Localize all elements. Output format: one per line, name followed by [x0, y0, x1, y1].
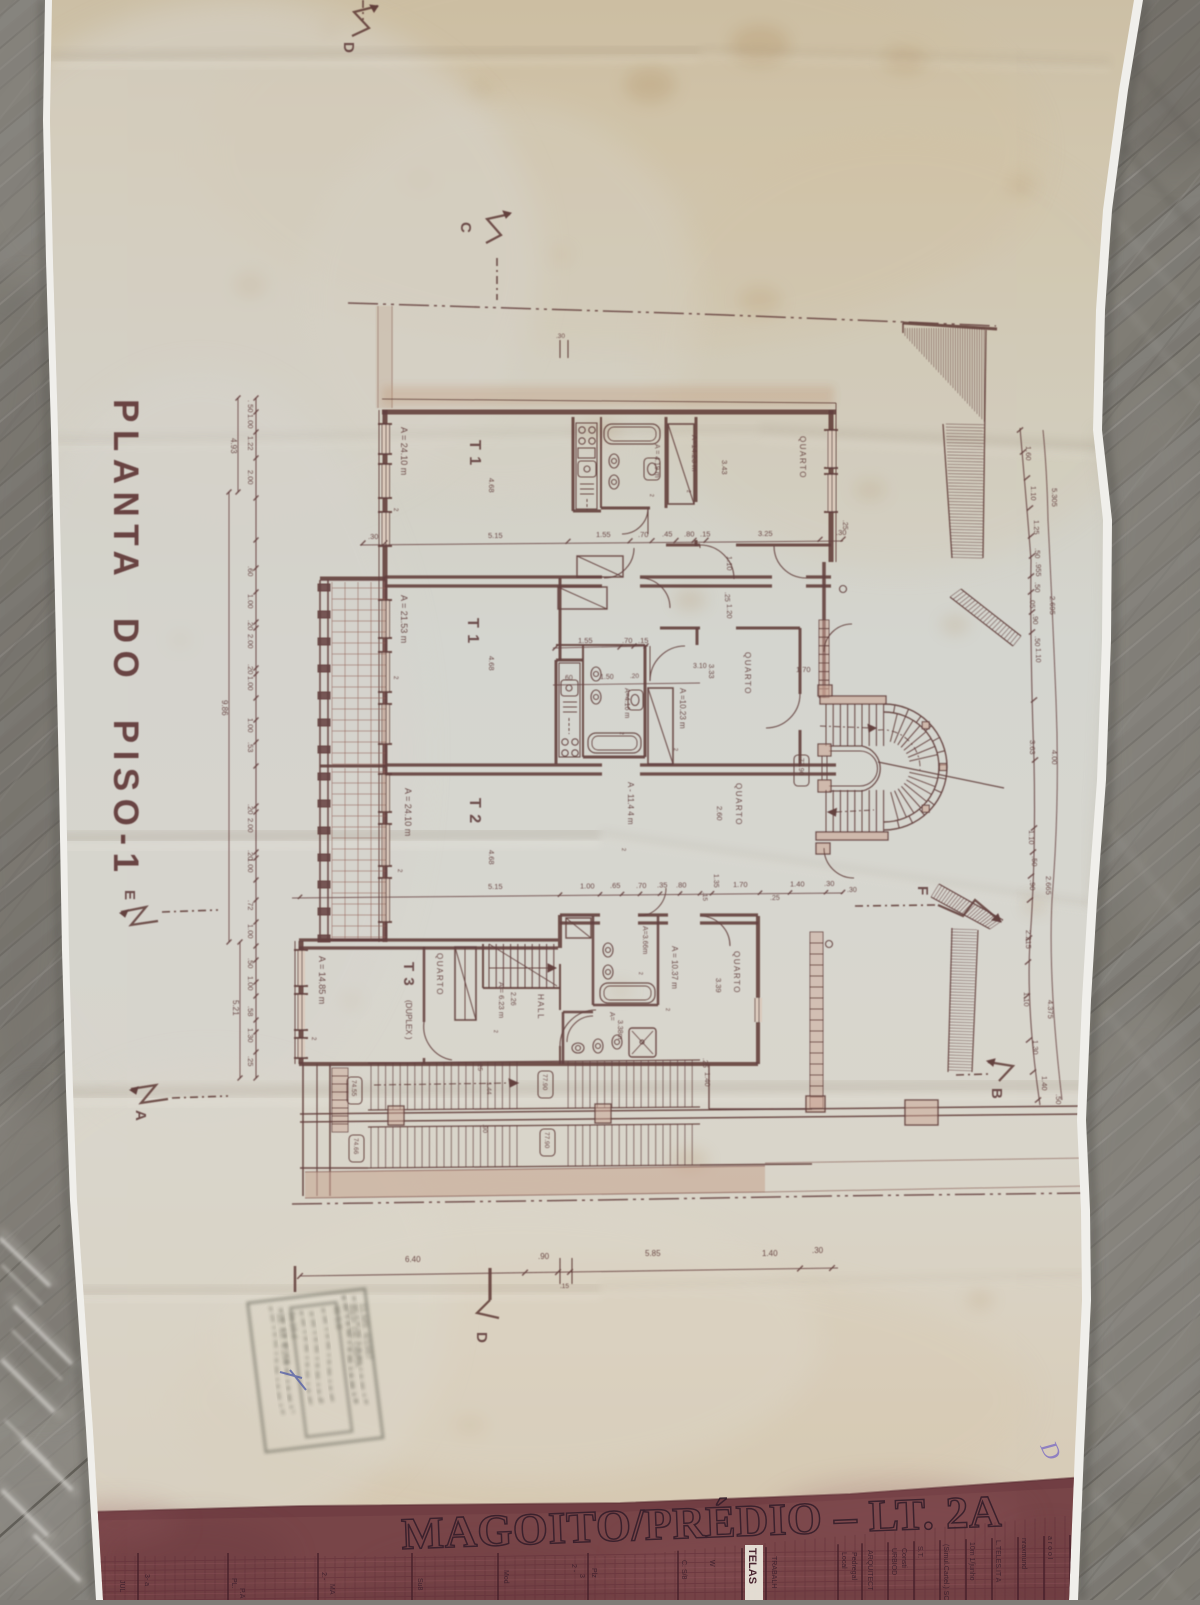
svg-text:T 3: T 3	[400, 962, 417, 987]
svg-text:A: A	[132, 1110, 149, 1121]
svg-text:C: C	[457, 222, 474, 233]
svg-text:QUARTO: QUARTO	[743, 652, 752, 695]
svg-text:1.40: 1.40	[1040, 1076, 1049, 1091]
svg-text:.50: .50	[246, 958, 255, 968]
svg-text:.50: .50	[1033, 548, 1042, 558]
svg-text:MA: MA	[328, 1584, 335, 1595]
svg-text:1.00: 1.00	[246, 718, 255, 733]
svg-text:.20: .20	[246, 804, 255, 814]
svg-text:.15: .15	[638, 636, 648, 645]
svg-text:1.60: 1.60	[1024, 446, 1033, 461]
svg-text:3.39: 3.39	[714, 978, 723, 993]
svg-text:.30: .30	[812, 1246, 824, 1255]
svg-text:2: 2	[637, 972, 643, 975]
svg-text:1.55: 1.55	[596, 530, 611, 539]
svg-text:1.30: 1.30	[1031, 1040, 1040, 1055]
svg-text:2.00: 2.00	[246, 634, 255, 649]
svg-text:Mod: Mod	[502, 1570, 509, 1584]
svg-text:B: B	[988, 1088, 1005, 1099]
svg-text:74.55: 74.55	[350, 1080, 357, 1097]
svg-text:JUL: JUL	[118, 1580, 125, 1593]
svg-text:a r o o l: a r o o l	[1046, 1536, 1053, 1560]
svg-text:D: D	[473, 1332, 490, 1343]
svg-text:74.66: 74.66	[352, 1138, 359, 1155]
svg-text:.90: .90	[538, 1252, 550, 1261]
svg-text:PL.: PL.	[230, 1578, 237, 1589]
svg-text:4.375: 4.375	[1046, 1000, 1055, 1019]
svg-text:1.10: 1.10	[1029, 486, 1038, 501]
svg-text:A =10.23 m: A =10.23 m	[678, 688, 687, 729]
svg-text:T 2: T 2	[466, 798, 483, 824]
svg-text:.70: .70	[638, 530, 648, 539]
svg-text:2: 2	[685, 490, 691, 493]
svg-text:1.44: 1.44	[485, 1082, 492, 1095]
svg-text:Pedregal: Pedregal	[850, 1552, 857, 1580]
svg-text:3.10: 3.10	[693, 663, 707, 670]
svg-text:W: W	[708, 1560, 715, 1567]
svg-text:1.70: 1.70	[733, 880, 748, 889]
svg-text:10m 1/junho: 10m 1/junho	[968, 1542, 975, 1581]
svg-text:.58: .58	[246, 1006, 255, 1016]
svg-text:.53: .53	[246, 742, 255, 752]
svg-text:77.90: 77.90	[541, 1074, 548, 1091]
svg-text:.50: .50	[1054, 1094, 1063, 1104]
svg-text:.25: .25	[476, 1062, 483, 1071]
svg-text:URBIOD: URBIOD	[890, 1548, 897, 1575]
svg-text:Plz: Plz	[590, 1568, 597, 1578]
svg-text:.25: .25	[246, 1056, 255, 1066]
svg-text:5.85: 5.85	[645, 1249, 661, 1258]
svg-text:1.22: 1.22	[246, 436, 255, 451]
svg-text:1.35: 1.35	[712, 874, 719, 888]
svg-text:1.70: 1.70	[796, 665, 811, 674]
svg-text:4.68: 4.68	[487, 478, 496, 493]
svg-text:PLANTA DO PISO-1: PLANTA DO PISO-1	[106, 399, 145, 880]
svg-text:3- a: 3- a	[143, 1574, 150, 1586]
svg-text:1.00: 1.00	[246, 594, 255, 609]
svg-text:.15: .15	[701, 892, 708, 901]
svg-text:A=: A=	[608, 1012, 615, 1021]
svg-text:.80: .80	[676, 881, 686, 890]
svg-text:HALL: HALL	[536, 994, 545, 1020]
svg-text:1.50: 1.50	[600, 674, 614, 681]
svg-text:Local: Local	[840, 1552, 847, 1569]
svg-text:3.38m: 3.38m	[616, 1020, 623, 1040]
svg-text:F: F	[914, 886, 931, 895]
svg-text:A=3.66m: A=3.66m	[641, 926, 648, 954]
svg-text:1.10: 1.10	[1022, 992, 1031, 1007]
svg-text:2: 2	[648, 494, 654, 497]
svg-text:1.10: 1.10	[725, 556, 734, 571]
svg-text:T 1: T 1	[466, 440, 483, 466]
svg-text:1.40: 1.40	[762, 1249, 778, 1258]
svg-text:2: 2	[620, 848, 626, 851]
svg-text:.25: .25	[770, 895, 780, 902]
svg-text:.15: .15	[700, 529, 710, 538]
svg-text:.90: .90	[1028, 880, 1037, 890]
svg-text:9.86: 9.86	[220, 700, 229, 716]
svg-text:.90: .90	[481, 1124, 488, 1133]
svg-text:3.25: 3.25	[758, 529, 773, 538]
svg-text:Consti: Consti	[900, 1548, 907, 1568]
svg-text:1.40: 1.40	[790, 880, 805, 889]
svg-text:.20: .20	[246, 620, 255, 630]
svg-text:T 1: T 1	[464, 618, 481, 644]
svg-text:.60: .60	[246, 566, 255, 576]
svg-text:.30: .30	[847, 887, 857, 894]
svg-text:77.90: 77.90	[543, 1132, 550, 1149]
svg-text:5.21: 5.21	[231, 1000, 240, 1016]
svg-text:4.93: 4.93	[229, 438, 238, 454]
svg-text:5.15: 5.15	[488, 531, 503, 540]
svg-text:TRABALH: TRABALH	[770, 1556, 777, 1588]
svg-text:A - 11.4 4 m: A - 11.4 4 m	[626, 782, 635, 825]
svg-text:A=14.23 m: A=14.23 m	[690, 435, 699, 471]
svg-text:1.10: 1.10	[1027, 830, 1036, 845]
svg-text:P.A: P.A	[238, 1588, 245, 1599]
svg-text:6.40: 6.40	[405, 1255, 421, 1264]
svg-text:2.665: 2.665	[1044, 876, 1053, 895]
svg-text:.70: .70	[636, 881, 646, 890]
svg-text:4.68: 4.68	[487, 850, 496, 865]
svg-text:3.43: 3.43	[720, 460, 729, 475]
svg-text:1.00: 1.00	[246, 976, 255, 991]
svg-text:1.40: 1.40	[703, 1072, 712, 1087]
svg-text:1.25: 1.25	[1032, 520, 1041, 535]
svg-text:2.60: 2.60	[715, 806, 724, 821]
svg-text:.05: .05	[1028, 598, 1037, 608]
svg-text:5.305: 5.305	[1050, 488, 1059, 507]
svg-text:1.00: 1.00	[246, 676, 255, 691]
svg-text:2: 2	[672, 748, 678, 751]
svg-text:2.00: 2.00	[246, 470, 255, 485]
svg-text:2.-: 2.-	[320, 1572, 327, 1581]
svg-text:5.15: 5.15	[488, 882, 503, 891]
svg-text:C. S/8: C. S/8	[680, 1560, 687, 1580]
svg-text:.45: .45	[662, 530, 672, 539]
svg-text:(DUPLEX ): (DUPLEX )	[404, 1000, 413, 1040]
svg-text:2: 2	[664, 1008, 670, 1011]
svg-text:.20: .20	[246, 664, 255, 674]
svg-text:A = 24.10 m: A = 24.10 m	[399, 427, 409, 475]
svg-text:A = 4.19 m: A = 4.19 m	[653, 444, 660, 478]
svg-text:TELAS: TELAS	[746, 1548, 758, 1584]
svg-text:2: 2	[492, 1030, 498, 1033]
svg-text:2: 2	[618, 732, 624, 735]
svg-text:1.00: 1.00	[580, 881, 595, 890]
svg-text:ARQUITECT: ARQUITECT	[866, 1550, 873, 1591]
svg-text:.25: .25	[701, 1058, 708, 1068]
svg-text:A = 24.10 m: A = 24.10 m	[403, 788, 413, 836]
svg-text:3: 3	[578, 1574, 585, 1578]
svg-text:.30: .30	[556, 333, 565, 340]
svg-text:.25: .25	[841, 520, 848, 530]
svg-text:.20: .20	[630, 673, 639, 680]
svg-text:1.00: 1.00	[246, 414, 255, 429]
svg-text:4.00: 4.00	[1050, 750, 1059, 765]
svg-text:1.00: 1.00	[246, 924, 255, 939]
svg-text:A = 6.23 m: A = 6.23 m	[497, 982, 506, 1018]
svg-text:Su8: Su8	[416, 1578, 423, 1591]
svg-text:.35: .35	[657, 881, 667, 890]
svg-text:nraxmund: nraxmund	[1020, 1538, 1027, 1569]
svg-text:.80: .80	[684, 529, 694, 538]
svg-text:1.20: 1.20	[725, 604, 734, 619]
svg-text:2 -: 2 -	[570, 1564, 577, 1573]
svg-text:.30: .30	[368, 532, 378, 541]
svg-text:A = 10.37 m: A = 10.37 m	[670, 946, 679, 989]
svg-text:.50: .50	[1033, 582, 1042, 592]
svg-text:L.TELES.IT A: L.TELES.IT A	[994, 1540, 1001, 1583]
svg-text:.955: .955	[1034, 562, 1043, 577]
svg-text:1.10: 1.10	[1034, 648, 1043, 663]
svg-text:.60: .60	[563, 675, 573, 682]
svg-text:.15: .15	[560, 1283, 569, 1290]
svg-text:4.68: 4.68	[487, 656, 496, 671]
svg-text:77.90: 77.90	[797, 758, 804, 776]
svg-text:1.55: 1.55	[578, 636, 593, 645]
svg-text:.30: .30	[824, 879, 834, 888]
svg-text:1.30: 1.30	[246, 1028, 255, 1043]
svg-text:3.33: 3.33	[707, 664, 716, 679]
svg-text:2.215: 2.215	[1024, 930, 1033, 949]
svg-text:A = 14.85 m: A = 14.85 m	[317, 956, 327, 1004]
svg-text:QUARTO: QUARTO	[734, 783, 743, 826]
svg-text:. 50: . 50	[246, 400, 255, 413]
svg-text:2.26: 2.26	[509, 992, 516, 1006]
svg-text:D: D	[340, 42, 357, 53]
svg-text:2.695: 2.695	[1048, 596, 1057, 615]
svg-text:.50: .50	[1033, 636, 1042, 646]
svg-text:2.00: 2.00	[246, 818, 255, 833]
svg-text:3.63: 3.63	[1028, 740, 1037, 755]
svg-text:.90: .90	[1031, 614, 1040, 624]
svg-text:.72: .72	[246, 900, 255, 910]
svg-text:QUARTO: QUARTO	[798, 436, 807, 479]
svg-text:.65: .65	[610, 881, 620, 890]
svg-text:.70: .70	[622, 636, 632, 645]
svg-text:.50: .50	[1030, 856, 1039, 866]
svg-text:A = 21.53 m: A = 21.53 m	[399, 595, 409, 643]
svg-text:(Simul.Cartel.) SC: (Simul.Cartel.) SC	[942, 1544, 949, 1600]
svg-text:.25: .25	[723, 592, 730, 602]
svg-text:E: E	[121, 890, 138, 900]
svg-text:QUARTO: QUARTO	[435, 953, 444, 996]
svg-text:S.T.: S.T.	[916, 1546, 923, 1558]
svg-text:1.00: 1.00	[246, 858, 255, 873]
svg-text:A=4.16 m: A=4.16 m	[623, 688, 630, 718]
svg-text:QUARTO: QUARTO	[732, 951, 741, 994]
